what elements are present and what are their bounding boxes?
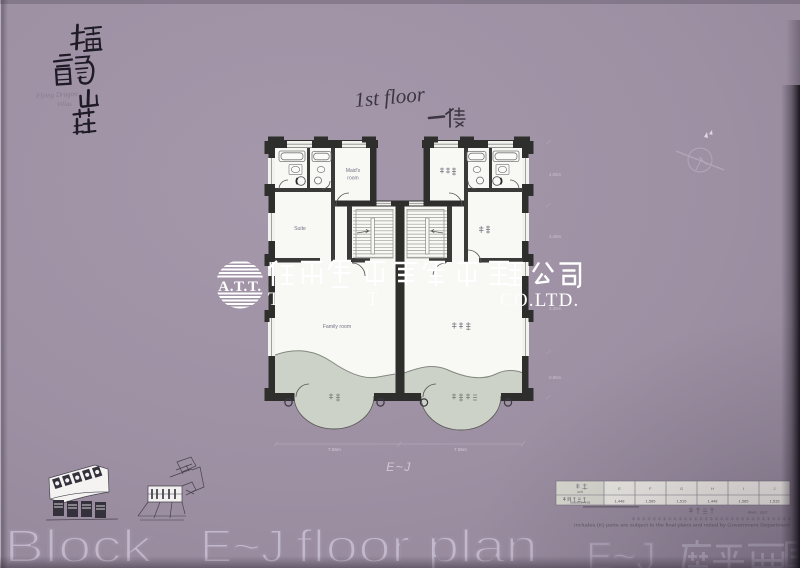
svg-text:Suite: Suite (294, 226, 306, 232)
svg-text:T: T (367, 289, 379, 310)
svg-text:Family room: Family room (323, 324, 352, 330)
svg-text:Villas: Villas (57, 101, 72, 108)
svg-text:Maid's: Maid's (346, 168, 361, 174)
svg-text:A.T.T.: A.T.T. (218, 279, 261, 295)
svg-text:4.05m: 4.05m (549, 172, 562, 177)
svg-text:room: room (347, 176, 358, 182)
svg-text:7.55m: 7.55m (328, 447, 341, 452)
svg-text:3.45m: 3.45m (549, 234, 562, 239)
svg-text:T: T (268, 289, 280, 310)
